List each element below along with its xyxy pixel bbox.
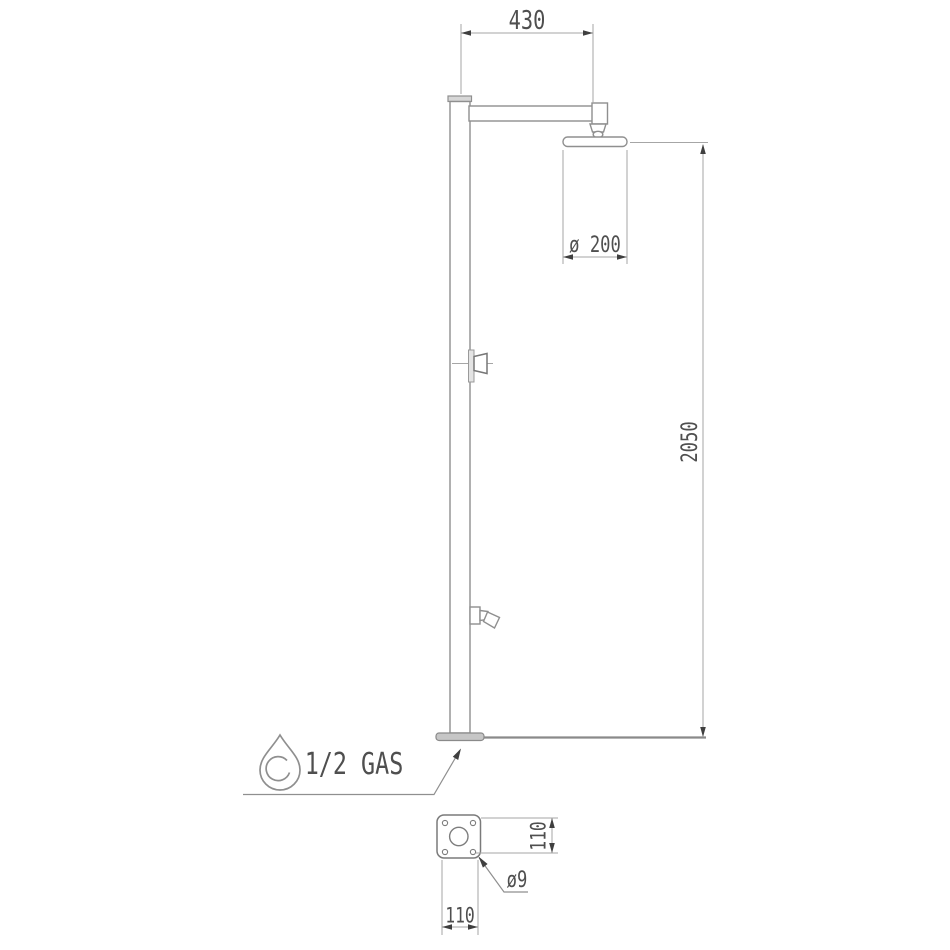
dim-label-hole-diameter: ø9 xyxy=(507,870,528,892)
dim-label-plate-depth: 110 xyxy=(529,821,550,851)
valve-knob xyxy=(474,354,487,374)
valve-backplate xyxy=(469,350,475,382)
pole xyxy=(450,102,470,734)
spout xyxy=(470,607,500,628)
dim-label-arm-reach: 430 xyxy=(509,8,546,34)
arm xyxy=(469,106,594,121)
dim-label-plate-width: 110 xyxy=(445,906,475,927)
drawing-linework xyxy=(0,0,950,950)
dim-label-head-diameter: ø 200 xyxy=(569,235,621,257)
shower-head-disc xyxy=(563,137,627,147)
water-drop-icon xyxy=(260,735,300,790)
technical-drawing-page: 430 ø 200 2050 1/2 GAS 110 110 ø9 xyxy=(0,0,950,950)
base-slab xyxy=(436,733,484,741)
front-view xyxy=(436,96,706,741)
dim-label-column-height: 2050 xyxy=(680,421,702,462)
pole-cap xyxy=(448,96,472,102)
gas-connection-label: 1/2 GAS xyxy=(305,750,404,780)
base-plan-view xyxy=(437,815,481,858)
arm-end-block xyxy=(592,103,608,124)
